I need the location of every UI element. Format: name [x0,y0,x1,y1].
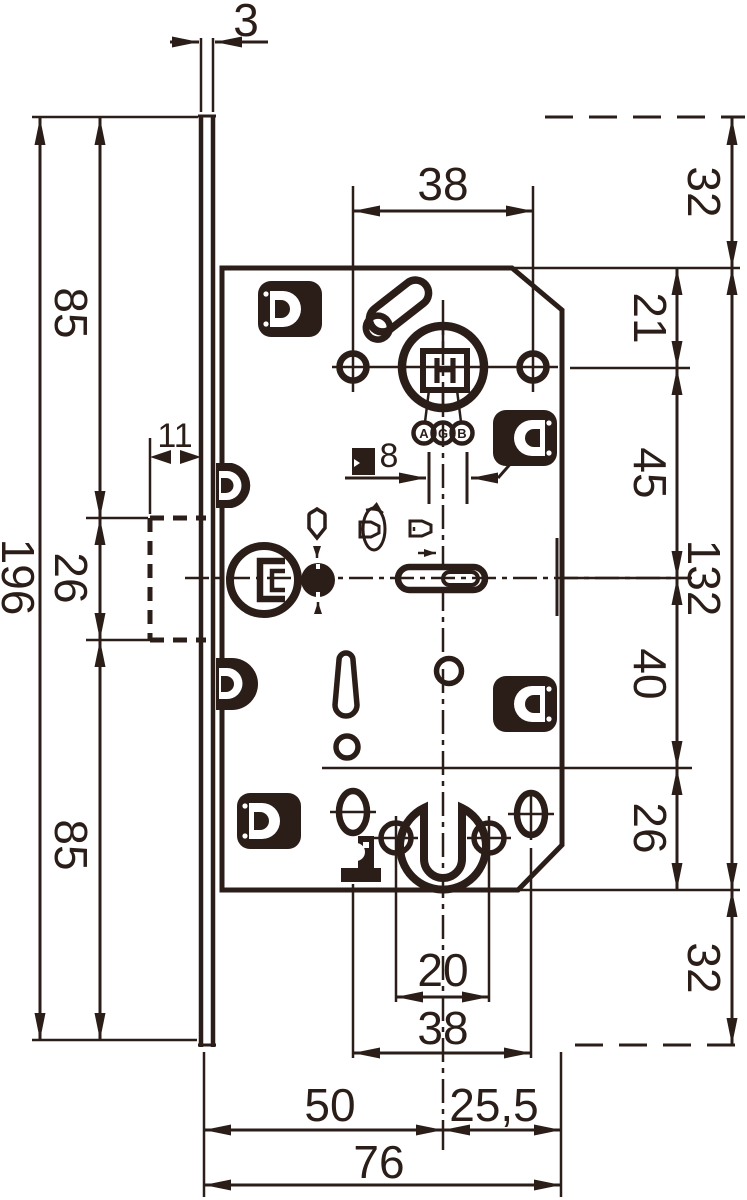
dim-strike-depth: 11 [150,417,201,514]
fixing-lug-icon [216,658,258,710]
fixing-lug-icon [237,793,301,849]
spindle-square-icon [352,448,375,475]
dim-label: 85 [45,819,97,870]
dim-plate-thickness: 3 [170,0,268,112]
handle-hub: H [402,326,484,412]
fixing-lug-icon [493,676,557,732]
dim-label: 38 [417,1002,468,1054]
dim-label: 40 [624,648,676,699]
dim-right-outer: 32 132 32 [678,118,732,1045]
faceplate [198,115,216,1047]
latch-follower [230,546,298,614]
cylinder-screw-hole-right [467,816,511,860]
bottom-bracket [341,836,381,882]
dim-label: 8 [380,437,399,475]
dim-case-depth: 76 [204,1136,561,1188]
fixing-lug-icon [216,463,250,508]
dim-label: 32 [678,166,730,217]
fixing-lug-icon [258,281,322,337]
dim-label: 11 [157,417,192,455]
dim-label: 26 [45,552,97,603]
dim-label: 38 [417,158,468,210]
oval-hole-left [330,791,376,833]
dim-plate-length: 196 [0,118,44,1040]
dim-label: 21 [624,292,676,343]
dim-label: 196 [0,539,44,616]
oval-hole-right [508,790,554,840]
dim-label: 132 [678,540,730,617]
dim-label: 25,5 [449,1079,539,1131]
adjust-slot [335,653,358,758]
dim-label: 85 [45,287,97,338]
dim-label: 50 [304,1079,355,1131]
mortise-lock-technical-drawing: H A G B [0,0,747,1200]
hub-marking: H [432,350,458,391]
dim-hub-screws-spacing: 38 [353,158,533,211]
dimensions: 3 38 196 85 26 85 11 [0,0,740,1197]
dim-left-chain: 85 26 85 [45,118,163,1040]
dim-label: 32 [678,942,730,993]
small-hole [437,659,462,684]
stop-pin [301,563,335,597]
drawing-canvas: H A G B [0,0,747,1200]
logo-letter: B [457,426,466,441]
dim-label: 45 [624,447,676,498]
logo-letter: G [438,426,448,441]
dim-label: 76 [353,1136,404,1188]
logo-letter: A [419,426,429,441]
fixing-lug-icon [493,410,557,466]
key-insert-icon [410,521,436,553]
dim-label: 20 [417,944,468,996]
key-turn-icon [360,508,385,550]
dim-label: 3 [233,0,259,46]
shield-icon [309,509,325,558]
reference-lines [32,117,745,1045]
dim-label: 26 [624,802,676,853]
